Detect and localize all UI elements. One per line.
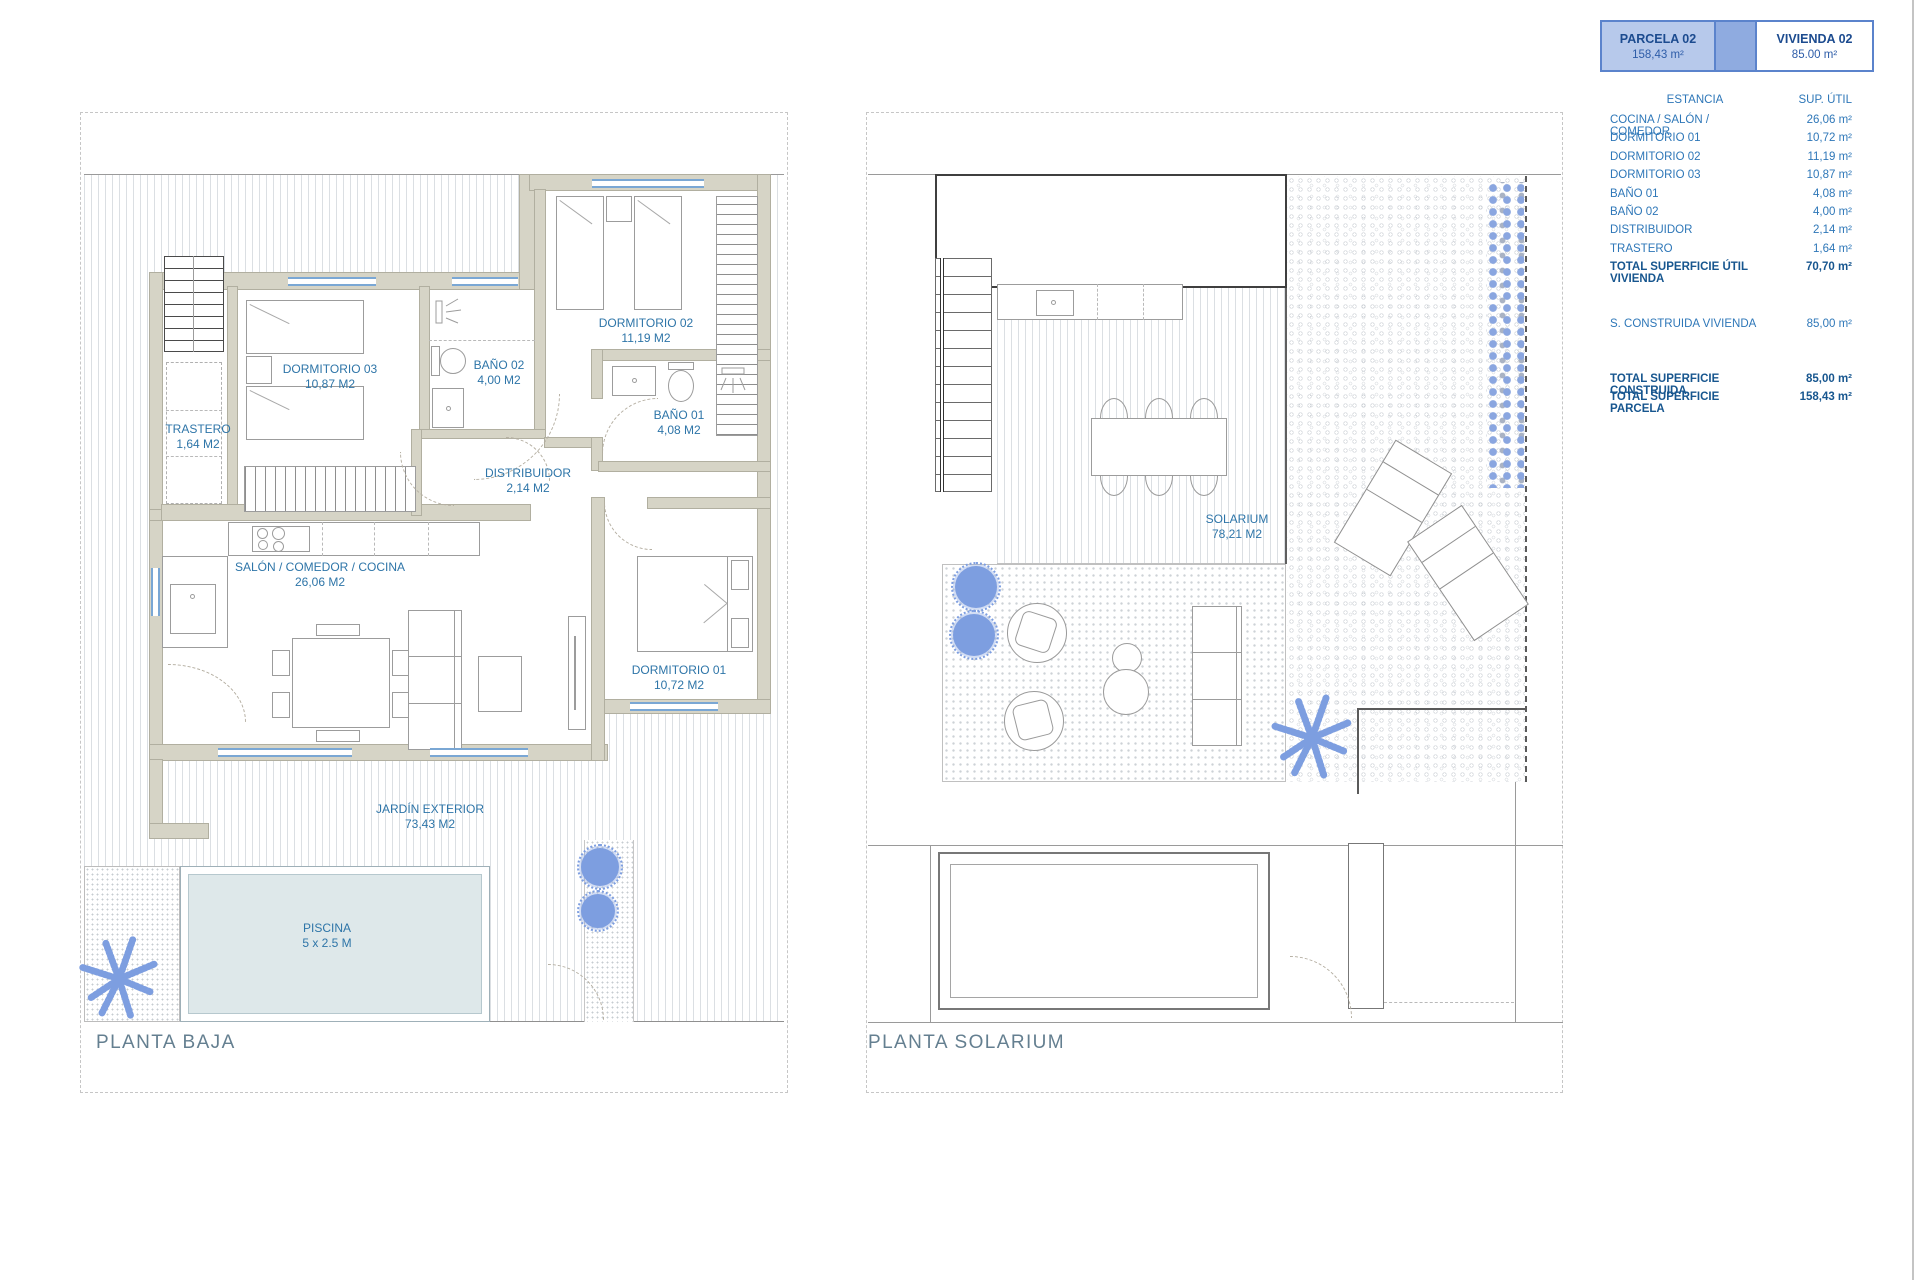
counter-divider [1097,284,1098,320]
legend-row-value: 1,64 m² [1772,243,1852,255]
room-name: DISTRIBUIDOR [485,466,571,481]
construida-label: S. CONSTRUIDA VIVIENDA [1610,318,1772,330]
room-label: SOLARIUM78,21 M2 [1206,512,1269,542]
room-name: SOLARIUM [1206,512,1269,527]
nightstand-icon [606,196,632,222]
counter-divider [374,522,375,556]
toilet-icon [668,362,694,370]
bed-headboard [727,556,728,652]
parcela-label: PARCELA 02 [1620,32,1696,46]
wall [420,287,429,437]
shelf-line [166,456,222,457]
room-area: 78,21 M2 [1206,527,1269,542]
parcela-area: 158,43 m² [1632,49,1684,61]
legend: ESTANCIA SUP. ÚTIL COCINA / SALÓN / COME… [1610,94,1852,280]
pillow-icon [731,560,749,590]
room-area: 10,72 M2 [632,678,726,693]
room-label: TRASTERO1,64 M2 [165,422,230,452]
sink-drain [190,594,195,599]
wall-line [1357,708,1359,794]
sofa-cushion [1192,652,1242,653]
hob-burner [257,528,268,539]
hob-burner [272,527,285,540]
legend-totals: TOTAL SUPERFICIE CONSTRUIDA85,00 m²TOTAL… [1610,373,1852,410]
wall [592,350,602,398]
room-name: JARDÍN EXTERIOR [376,802,484,817]
legend-row-value: 4,08 m² [1772,188,1852,200]
legend-row-value: 4,00 m² [1772,206,1852,218]
toilet-icon [668,370,694,402]
wardrobe-icon [244,466,416,512]
wall [592,498,604,760]
wall [648,498,770,508]
room-name: BAÑO 02 [474,358,525,373]
chair-icon [272,650,290,676]
room-label: DORMITORIO 0110,72 M2 [632,663,726,693]
bed-icon [246,300,364,354]
bush-icon [581,848,619,886]
legend-row: DORMITORIO 0211,19 m² [1610,151,1852,169]
wall [599,462,770,471]
pillow-icon [731,618,749,648]
sofa-back [454,610,455,750]
room-name: DORMITORIO 02 [599,316,693,331]
wardrobe-icon [716,196,758,436]
plan-title-planta-baja: PLANTA BAJA [96,1032,236,1054]
pool-void-outline [950,864,1258,998]
stairs-rail [193,256,194,352]
room-name: TRASTERO [165,422,230,437]
legend-row-value: 10,72 m² [1772,132,1852,144]
dashed-line [1384,1002,1514,1003]
legend-row-label: DORMITORIO 02 [1610,151,1772,163]
room-label: BAÑO 014,08 M2 [654,408,705,438]
bed-icon [634,196,682,310]
planter [1348,843,1384,1009]
room-label: SALÓN / COMEDOR / COCINA26,06 M2 [235,560,405,590]
window [151,568,160,616]
legend-row-label: TOTAL SUPERFICIE ÚTIL VIVIENDA [1610,261,1772,285]
hob-burner [273,541,284,552]
room-name: DORMITORIO 01 [632,663,726,678]
window [288,277,376,286]
counter-divider [322,522,323,556]
nightstand-icon [246,356,272,384]
wall [228,287,237,515]
legend-row: DISTRIBUIDOR2,14 m² [1610,224,1852,242]
room-name: BAÑO 01 [654,408,705,423]
bed-icon [246,386,364,440]
bush-icon [955,566,997,608]
sink-drain [446,406,451,411]
counter-divider [1143,284,1144,320]
boundary-dashed [1525,176,1527,782]
window [630,702,718,711]
counter-divider [428,522,429,556]
sofa-cushion [1192,699,1242,700]
legend-row: DORMITORIO 0110,72 m² [1610,132,1852,150]
shower-divider [429,340,535,341]
vivienda-area: 85.00 m² [1792,49,1837,61]
palm-tree-icon [1262,686,1362,786]
window [430,748,528,757]
sofa-back [1236,606,1237,746]
legend-row: BAÑO 024,00 m² [1610,206,1852,224]
bush-icon [581,894,615,928]
plot-line [930,845,931,1022]
coffee-table-icon [478,656,522,712]
bush-icon [953,614,995,656]
room-area: 11,19 M2 [599,331,693,346]
shelf-line [166,410,222,411]
legend-row-label: TRASTERO [1610,243,1772,255]
plot-line [868,845,1563,846]
tv-icon [574,636,576,710]
legend-row: TOTAL SUPERFICIE ÚTIL VIVIENDA70,70 m² [1610,261,1852,279]
sheet-border [1912,0,1914,1280]
legend-construida: S. CONSTRUIDA VIVIENDA 85,00 m² [1610,318,1852,336]
hob-burner [258,540,268,550]
wall-line [1515,782,1516,1022]
dining-table [1091,418,1227,476]
construida-value: 85,00 m² [1772,318,1852,330]
shower-icon [716,366,750,396]
legend-header: ESTANCIA SUP. ÚTIL [1610,94,1852,114]
room-area: 4,08 M2 [654,423,705,438]
sofa-cushion [408,703,462,704]
wall [758,175,770,713]
room-label: PISCINA5 x 2.5 M [302,921,351,951]
sink-icon [170,584,216,634]
plan-title-planta-solarium: PLANTA SOLARIUM [868,1032,1065,1054]
room-name: SALÓN / COMEDOR / COCINA [235,560,405,575]
room-area: 10,87 M2 [283,377,377,392]
room-area: 73,43 M2 [376,817,484,832]
room-label: DORMITORIO 0211,19 M2 [599,316,693,346]
legend-row-value: 2,14 m² [1772,224,1852,236]
hedge-icon [1486,182,1524,488]
side-table-icon [1103,669,1149,715]
legend-row: BAÑO 014,08 m² [1610,188,1852,206]
room-area: 26,06 M2 [235,575,405,590]
tv-unit-icon [568,616,586,730]
legend-total-label: TOTAL SUPERFICIE PARCELA [1610,391,1772,415]
chair-icon [316,730,360,742]
legend-row: DORMITORIO 0310,87 m² [1610,169,1852,187]
bed-icon [556,196,604,310]
room-name: PISCINA [302,921,351,936]
room-area: 4,00 M2 [474,373,525,388]
legend-row-label: BAÑO 01 [1610,188,1772,200]
window [218,748,352,757]
legend-total-value: 85,00 m² [1772,373,1852,385]
legend-row-label: BAÑO 02 [1610,206,1772,218]
dining-table [292,638,390,728]
wall [150,824,208,838]
wall-line [1357,708,1525,710]
legend-row-value: 26,06 m² [1772,114,1852,126]
chair-icon [316,624,360,636]
room-area: 1,64 M2 [165,437,230,452]
wall [520,175,534,289]
toilet-icon [440,348,466,374]
legend-row-value: 11,19 m² [1772,151,1852,163]
room-area: 2,14 M2 [485,481,571,496]
stairs-icon [164,256,224,352]
sink-drain [632,378,637,383]
toilet-icon [431,346,440,376]
sofa-cushion [408,656,462,657]
vivienda-cell: VIVIENDA 02 85.00 m² [1757,22,1872,70]
window [452,277,518,286]
counter [997,284,1183,320]
legend-row-label: DORMITORIO 03 [1610,169,1772,181]
legend-total-row: TOTAL SUPERFICIE CONSTRUIDA85,00 m² [1610,373,1852,391]
legend-row-label: DORMITORIO 01 [1610,132,1772,144]
sheet: PLANTA BAJA PLANTA SOLARIUM PARCELA 02 1… [0,0,1920,1280]
room-label: JARDÍN EXTERIOR73,43 M2 [376,802,484,832]
legend-col-sup-util: SUP. ÚTIL [1780,94,1852,114]
room-name: DORMITORIO 03 [283,362,377,377]
legend-total-row: TOTAL SUPERFICIE PARCELA158,43 m² [1610,391,1852,409]
legend-row-value: 10,87 m² [1772,169,1852,181]
room-label: DORMITORIO 0310,87 M2 [283,362,377,392]
legend-total-value: 158,43 m² [1772,391,1852,403]
room-area: 5 x 2.5 M [302,936,351,951]
deck-edge [1285,288,1287,564]
room-label: BAÑO 024,00 M2 [474,358,525,388]
legend-row: COCINA / SALÓN / COMEDOR26,06 m² [1610,114,1852,132]
vivienda-label: VIVIENDA 02 [1777,32,1853,46]
plot-line [868,1022,1563,1023]
sofa-icon [1192,606,1242,746]
legend-row-label: DISTRIBUIDOR [1610,224,1772,236]
window [592,179,704,188]
stairs-rail [940,258,944,492]
sink-drain [1051,300,1056,305]
wall [545,438,599,447]
summary-card: PARCELA 02 158,43 m² VIVIENDA 02 85.00 m… [1600,20,1874,72]
legend-col-estancia: ESTANCIA [1610,94,1780,114]
legend-row-value: 70,70 m² [1772,261,1852,273]
chair-icon [272,692,290,718]
room-label: DISTRIBUIDOR2,14 M2 [485,466,571,496]
legend-rows: COCINA / SALÓN / COMEDOR26,06 m²DORMITOR… [1610,114,1852,280]
card-spacer [1714,22,1757,70]
shower-icon [434,296,464,330]
palm-tree-icon [70,928,168,1026]
legend-row: TRASTERO1,64 m² [1610,243,1852,261]
parcela-cell: PARCELA 02 158,43 m² [1602,22,1714,70]
